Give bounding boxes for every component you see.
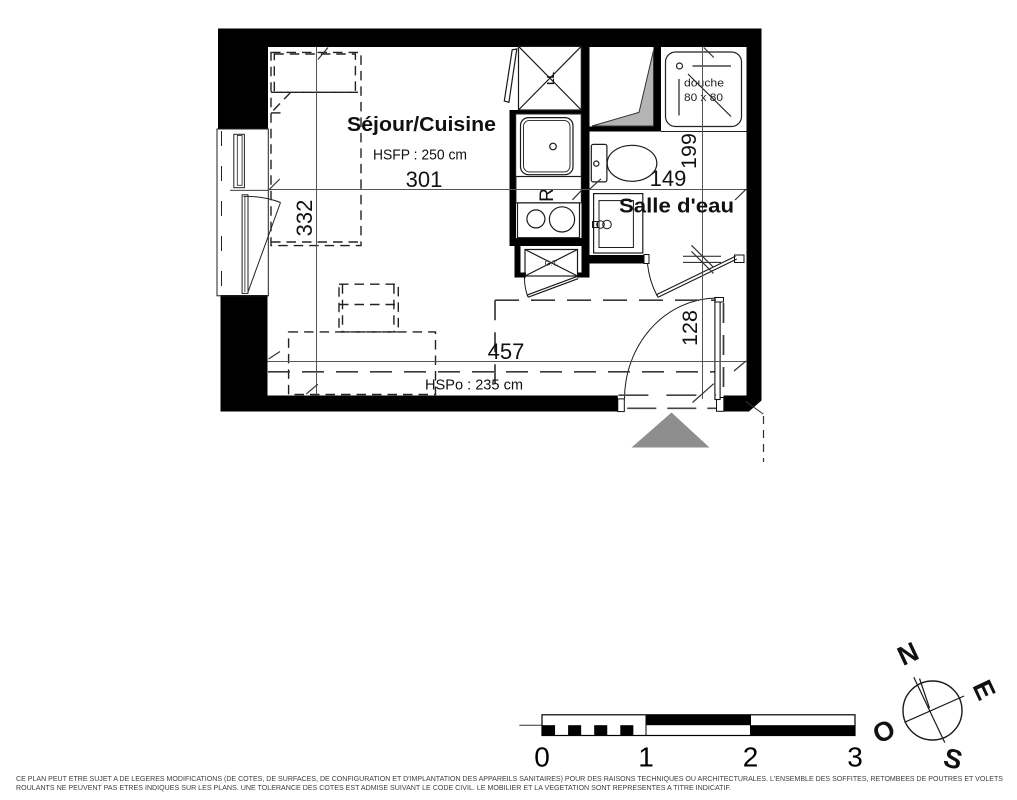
svg-text:douche: douche bbox=[684, 78, 724, 90]
svg-text:457: 457 bbox=[488, 339, 525, 364]
svg-text:HSFP : 250 cm: HSFP : 250 cm bbox=[373, 147, 467, 164]
svg-text:2: 2 bbox=[743, 742, 759, 773]
svg-text:Salle d'eau: Salle d'eau bbox=[619, 196, 734, 218]
svg-text:332: 332 bbox=[292, 200, 317, 237]
svg-text:E: E bbox=[967, 675, 1002, 704]
svg-text:LL: LL bbox=[545, 72, 557, 85]
svg-text:N: N bbox=[893, 636, 923, 671]
svg-text:S: S bbox=[940, 742, 965, 776]
svg-text:Séjour/Cuisine: Séjour/Cuisine bbox=[347, 114, 496, 136]
svg-text:1: 1 bbox=[638, 742, 654, 773]
svg-text:CE PLAN PEUT ETRE SUJET A DE L: CE PLAN PEUT ETRE SUJET A DE LEGERES MOD… bbox=[16, 776, 1003, 783]
svg-text:ROULANTS NE PEUVENT PAS ETRES: ROULANTS NE PEUVENT PAS ETRES INDIQUES S… bbox=[16, 785, 731, 792]
svg-text:HSPo : 235 cm: HSPo : 235 cm bbox=[425, 377, 523, 394]
svg-text:128: 128 bbox=[678, 310, 702, 346]
svg-text:R: R bbox=[537, 188, 558, 202]
svg-text:G.T.: G.T. bbox=[545, 259, 559, 268]
svg-text:0: 0 bbox=[534, 742, 550, 773]
svg-text:301: 301 bbox=[406, 167, 443, 192]
svg-text:O: O bbox=[868, 713, 900, 749]
svg-text:80 x 80: 80 x 80 bbox=[684, 92, 723, 104]
svg-text:3: 3 bbox=[847, 742, 863, 773]
svg-text:199: 199 bbox=[677, 133, 701, 169]
